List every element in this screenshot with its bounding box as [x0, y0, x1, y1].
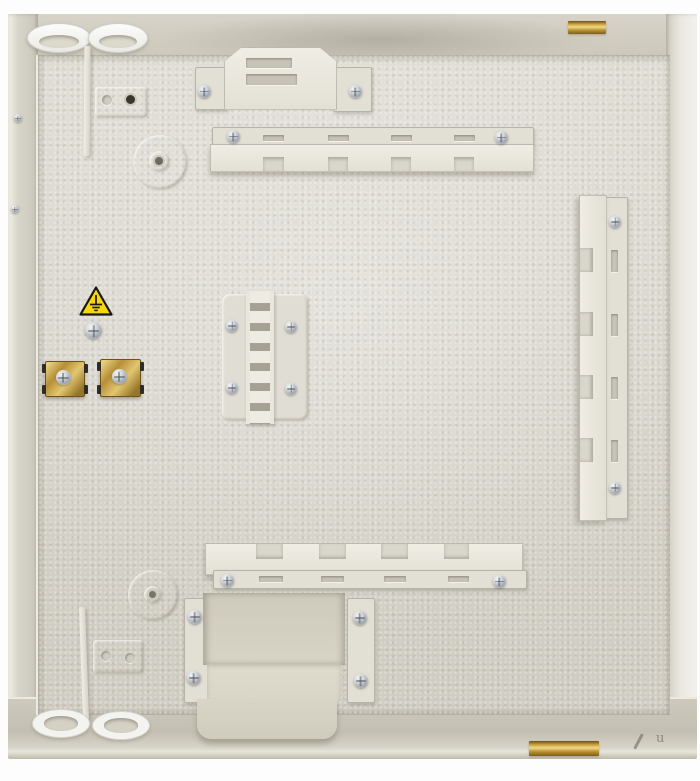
top-rail-gap-2: [328, 157, 348, 171]
top-rail-screw-right: [495, 131, 508, 144]
bottom-rail-screw-right: [493, 575, 506, 588]
divider-strip-top: [84, 46, 91, 156]
clamp-left-slot-tr: [84, 364, 88, 373]
earth-warning-svg: [79, 286, 113, 316]
clamp-right-slot-br: [140, 385, 144, 394]
cabinet-right-wall: [666, 14, 697, 759]
top-grommet-2: [88, 23, 148, 53]
cabinet-left-wall: [8, 14, 38, 759]
cable-clamp-right-screw: [112, 369, 127, 384]
top-rail-gap-1: [263, 157, 284, 171]
ladder-screw-top-left: [226, 320, 238, 332]
earth-warning-icon: [79, 286, 113, 316]
plate-bottom-hole-2: [125, 653, 135, 663]
top-rail-gap-3: [391, 157, 411, 171]
u-bracket-screw-tl: [188, 610, 202, 624]
ladder-screw-bottom-left: [226, 382, 238, 394]
top-rail-flange-slot-2: [328, 135, 349, 141]
right-rail-gap-2: [580, 312, 593, 336]
right-rail-flange-slot-4: [611, 440, 618, 462]
plate-hole-light: [102, 95, 112, 105]
right-rail-flange-slot-3: [611, 377, 618, 399]
bottom-rail-flange-slot-2: [321, 576, 344, 582]
right-rail-screw-top: [609, 216, 621, 228]
left-wall-screw-2: [11, 205, 19, 213]
clamp-right-slot-tl: [97, 362, 101, 371]
clamp-left-slot-tl: [42, 364, 46, 373]
knockout-bottom-hole: [149, 591, 156, 598]
bottom-rail-flange-slot-4: [448, 576, 469, 582]
bottom-rail-flange: [213, 570, 527, 589]
u-bracket-floor: [207, 663, 341, 701]
u-bracket-screw-bl: [187, 671, 201, 685]
top-grommet-1-hole: [39, 35, 79, 48]
right-rail-comb: [579, 195, 607, 521]
mounting-plate-bottom-left: [93, 640, 143, 673]
right-rail-screw-bottom: [609, 482, 621, 494]
u-bracket-screw-br: [354, 674, 368, 688]
mounting-plate-top-left: [95, 87, 147, 117]
clamp-right-slot-bl: [97, 385, 101, 394]
bottom-rail-gap-4: [444, 544, 469, 559]
clamp-left-slot-bl: [42, 385, 46, 394]
knockout-top: [133, 135, 187, 189]
top-rail-flange-slot-1: [263, 135, 284, 141]
photo-of-open-cabinet: u: [0, 0, 700, 781]
top-rail-screw-left: [227, 130, 240, 143]
ladder-screw-bottom-right: [285, 383, 297, 395]
bottom-rail-flange-slot-3: [384, 576, 406, 582]
right-rail-flange-slot-2: [611, 314, 618, 336]
bottom-rail-flange-slot-1: [259, 576, 283, 582]
top-rail-flange-slot-4: [454, 135, 475, 141]
left-wall-screw-1: [14, 114, 22, 122]
top-rail-flange-slot-3: [391, 135, 412, 141]
top-grommet-2-hole: [99, 35, 136, 48]
knockout-bottom: [128, 570, 178, 620]
u-bracket-front: [197, 699, 337, 739]
bottom-rail-gap-1: [256, 544, 283, 559]
plate-hole-dark: [126, 95, 135, 104]
bottom-rail-gap-3: [381, 544, 408, 559]
top-rail-comb: [210, 144, 534, 172]
bottom-grommet-2-hole: [104, 718, 139, 732]
ladder-screw-top-right: [285, 321, 297, 333]
right-rail-gap-1: [580, 248, 593, 272]
knockout-top-hole: [155, 157, 163, 165]
hinge-top: [568, 21, 606, 34]
u-bracket-back-face: [203, 593, 345, 665]
ladder-bracket-rungs: [246, 291, 274, 424]
right-rail-gap-3: [580, 375, 593, 399]
bottom-grommet-2: [92, 711, 150, 740]
top-bracket-body: [224, 47, 337, 110]
hinge-bottom: [529, 741, 599, 756]
top-grommet-1: [27, 23, 91, 53]
top-bracket-slot-1: [246, 58, 292, 68]
watermark-letter: u: [656, 731, 664, 746]
right-rail-flange-slot-1: [611, 250, 618, 272]
ground-stud-screw: [85, 322, 102, 339]
plate-bottom-hole-1: [101, 651, 111, 661]
clamp-right-slot-tr: [140, 362, 144, 371]
bottom-rail-gap-2: [319, 544, 346, 559]
u-bracket-screw-tr: [353, 611, 367, 625]
top-rail-gap-4: [454, 157, 474, 171]
cable-clamp-left-screw: [56, 370, 71, 385]
top-bracket-slot-2: [246, 74, 297, 85]
bottom-grommet-1: [32, 709, 90, 738]
bottom-grommet-1-hole: [44, 716, 79, 730]
bottom-rail-screw-left: [221, 574, 234, 587]
clamp-left-slot-br: [84, 385, 88, 394]
right-rail-gap-4: [580, 438, 593, 462]
top-bracket-screw-left: [198, 85, 211, 98]
top-bracket-screw-right: [349, 85, 362, 98]
